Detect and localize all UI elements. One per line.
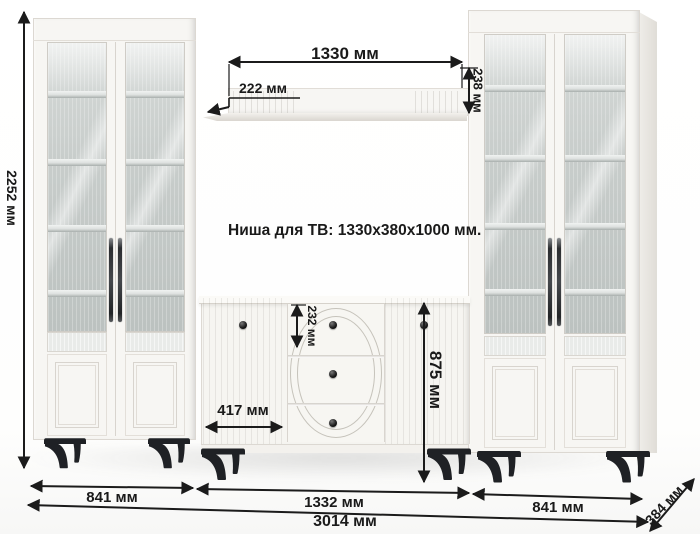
dim-shelf-front-height-label: 238 мм [471, 61, 486, 121]
dim-drawer-height-label: 232 мм [305, 299, 319, 353]
dimension-lines [0, 0, 700, 534]
tv-niche-note: Ниша для ТВ: 1330x380x1000 мм. [228, 222, 468, 240]
dim-sideboard-door-width-label: 417 мм [203, 402, 283, 419]
dim-shelf-depth-label: 222 мм [227, 80, 299, 96]
dim-sideboard-height-label: 875 мм [425, 345, 445, 415]
dim-total-height-label: 2252 мм [4, 163, 20, 233]
dim-total-width-label: 3014 мм [295, 513, 395, 531]
dim-sideboard-width-label: 1332 мм [284, 494, 384, 511]
furniture-dimension-diagram: 1330 мм 222 мм 238 мм 2252 мм 875 мм 232… [0, 0, 700, 534]
dim-shelf-width-label: 1330 мм [295, 44, 395, 64]
dim-right-cabinet-width-label: 841 мм [508, 499, 608, 516]
dim-left-cabinet-width-label: 841 мм [62, 489, 162, 506]
